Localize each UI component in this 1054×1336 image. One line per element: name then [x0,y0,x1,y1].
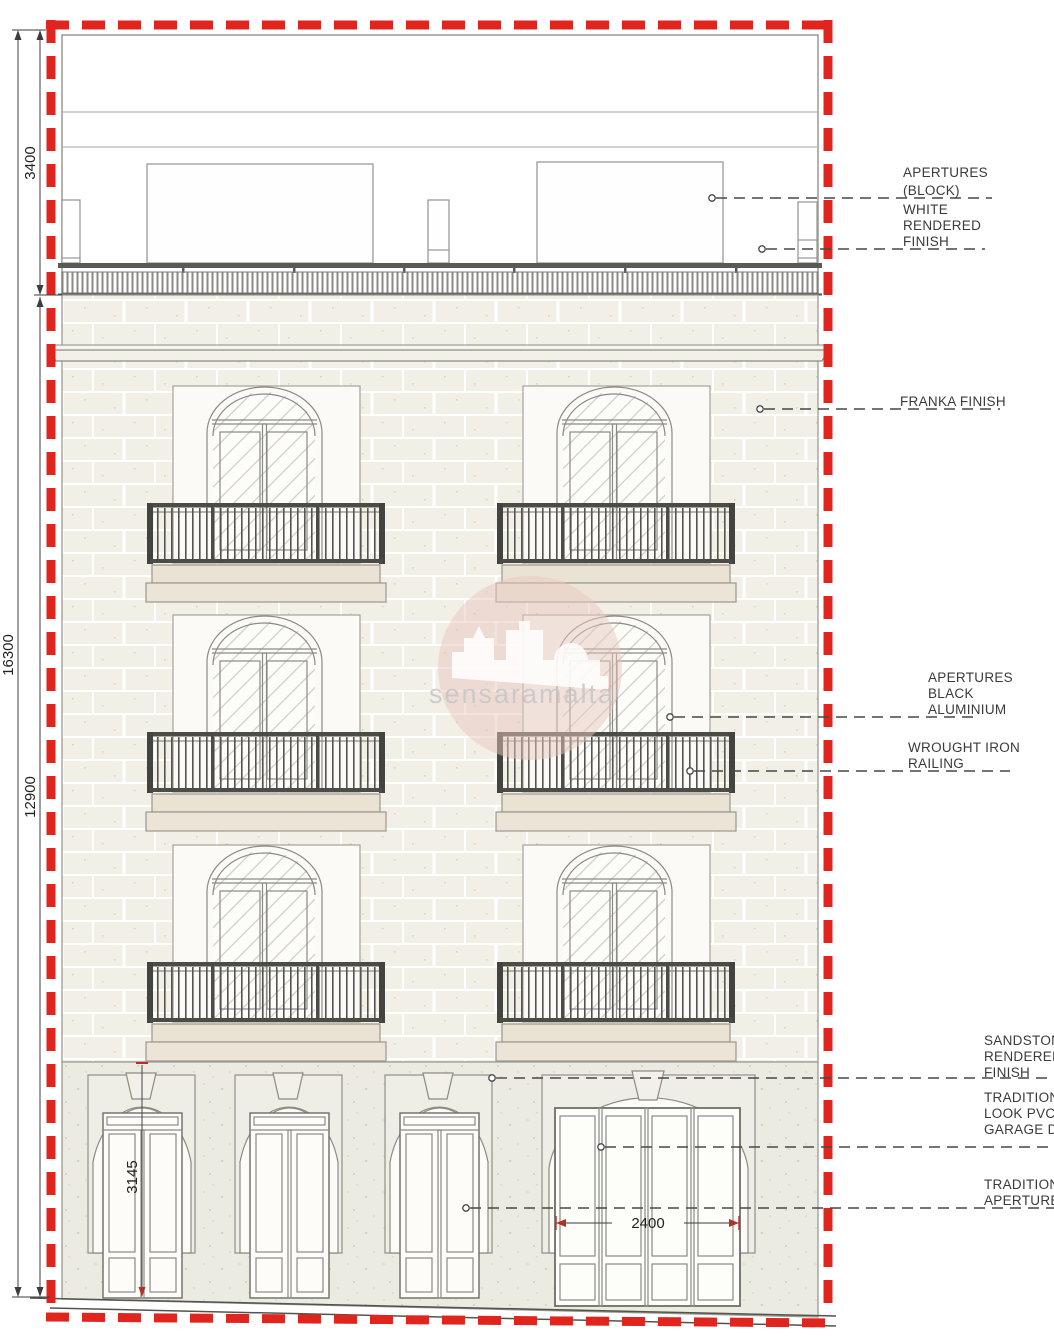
svg-text:APERTURES: APERTURES [903,165,988,180]
svg-text:FINISH: FINISH [984,1065,1030,1080]
window-unit-row3-left [146,845,386,1061]
dimension-total-height: 16300 [0,30,50,1297]
cornice [50,345,828,361]
dimension-facade-height: 12900 [22,297,44,1297]
svg-text:WROUGHT IRON: WROUGHT IRON [908,740,1020,755]
svg-text:ALUMINIUM: ALUMINIUM [928,702,1006,717]
watermark-text: sensaramalta [429,679,615,709]
svg-text:SANDSTONE: SANDSTONE [984,1033,1054,1048]
dim-label-3400: 3400 [22,146,39,179]
svg-text:APERTURES: APERTURES [928,670,1013,685]
boundary-bottom [46,1317,838,1323]
svg-text:TRADITIONAL: TRADITIONAL [984,1177,1054,1192]
dim-label-16300: 16300 [0,634,17,676]
roof-level [58,35,822,295]
dim-label-2400: 2400 [631,1215,664,1232]
svg-text:RAILING: RAILING [908,756,964,771]
svg-text:RENDERED: RENDERED [903,218,981,233]
garage-door-unit [542,1071,755,1306]
window-unit-row2-left [146,615,386,831]
svg-text:(BLOCK): (BLOCK) [903,183,960,198]
svg-text:APERTURES: APERTURES [984,1193,1054,1208]
svg-text:TRADITIONAL: TRADITIONAL [984,1090,1054,1105]
svg-text:LOOK PVC: LOOK PVC [984,1106,1054,1121]
window-unit-row1-right [496,386,736,602]
dim-label-3145: 3145 [124,1160,141,1193]
roof-railing [58,263,822,295]
window-unit-row3-right [496,845,736,1061]
window-unit-row1-left [146,386,386,602]
svg-text:RENDERED: RENDERED [984,1049,1054,1064]
door-unit-2 [235,1073,342,1298]
svg-text:GARAGE DOOR: GARAGE DOOR [984,1122,1054,1137]
dimension-roof-height: 3400 [22,30,62,295]
svg-text:FRANKA FINISH: FRANKA FINISH [900,394,1006,409]
dim-label-12900: 12900 [22,776,39,818]
elevation-drawing: sensaramalta 16300 3400 12900 3145 2 [0,0,1054,1336]
svg-text:WHITE: WHITE [903,202,948,217]
svg-text:BLACK: BLACK [928,686,974,701]
ground-floor [30,1062,836,1326]
svg-text:FINISH: FINISH [903,234,949,249]
elevation-drawing-canvas: sensaramalta 16300 3400 12900 3145 2 [0,0,1054,1336]
door-unit-3 [385,1073,492,1298]
